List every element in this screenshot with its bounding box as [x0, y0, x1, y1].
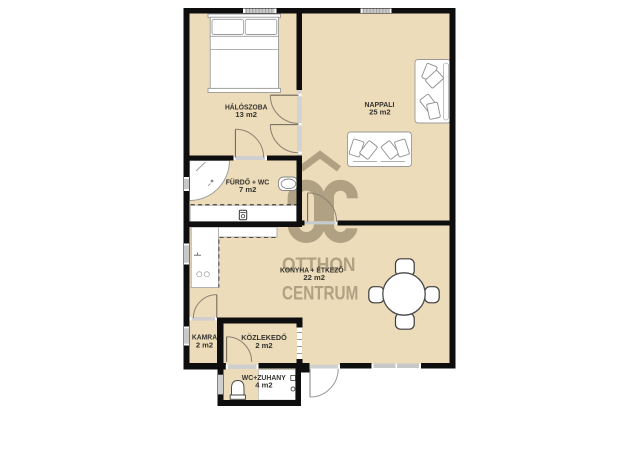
svg-text:7 m2: 7 m2: [239, 185, 256, 194]
svg-text:2 m2: 2 m2: [196, 340, 213, 349]
svg-text:13 m2: 13 m2: [235, 110, 257, 119]
svg-text:22 m2: 22 m2: [303, 273, 325, 282]
svg-text:4 m2: 4 m2: [255, 380, 272, 389]
svg-text:2 m2: 2 m2: [255, 341, 272, 350]
svg-text:25 m2: 25 m2: [369, 107, 391, 116]
svg-text:CENTRUM: CENTRUM: [282, 284, 358, 305]
